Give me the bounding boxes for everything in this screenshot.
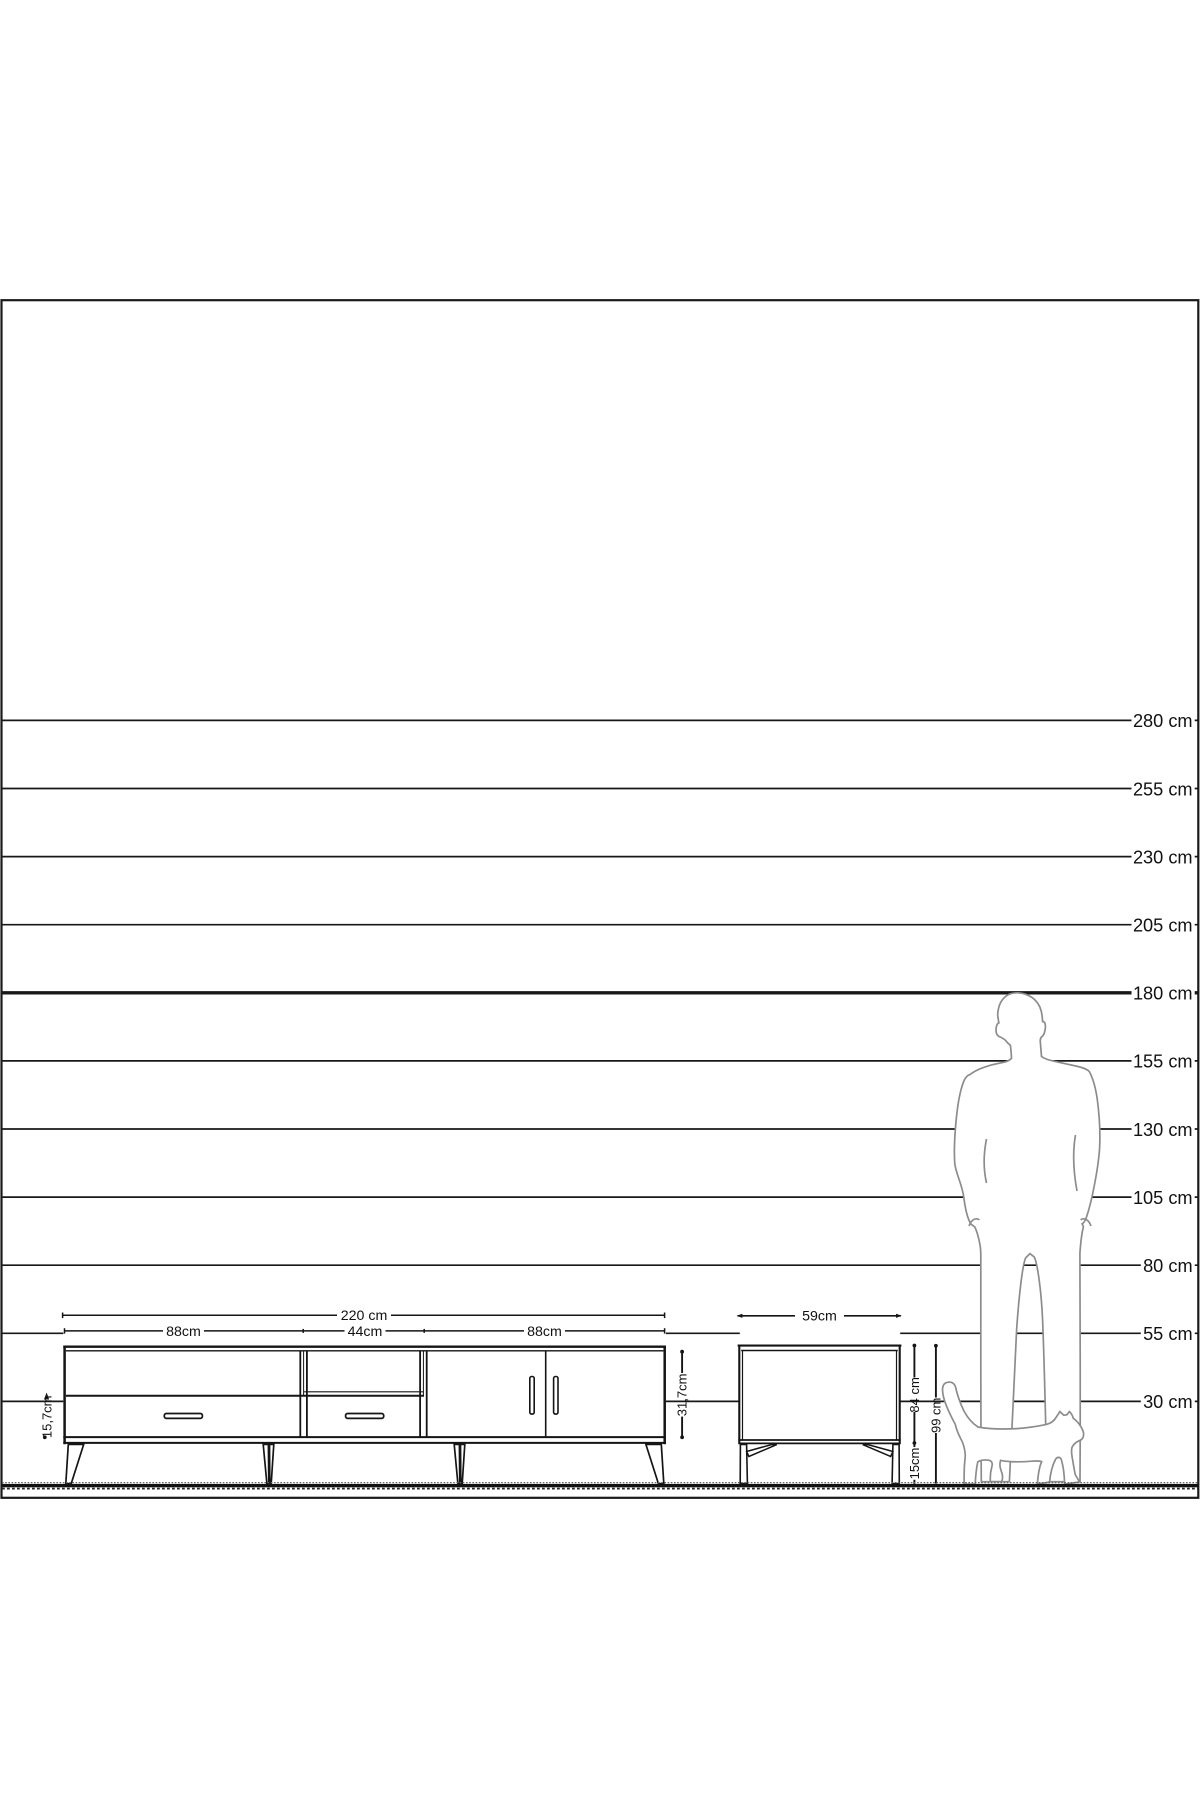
svg-text:280 cm: 280 cm: [1133, 711, 1193, 731]
svg-text:155 cm: 155 cm: [1133, 1052, 1193, 1072]
svg-text:130 cm: 130 cm: [1133, 1120, 1193, 1140]
svg-text:80 cm: 80 cm: [1143, 1256, 1193, 1276]
svg-text:88cm: 88cm: [527, 1324, 562, 1340]
svg-text:180 cm: 180 cm: [1133, 984, 1193, 1004]
svg-text:255 cm: 255 cm: [1133, 779, 1193, 799]
svg-text:31,7cm: 31,7cm: [674, 1374, 689, 1417]
svg-text:15,7cm: 15,7cm: [39, 1395, 54, 1438]
svg-text:230 cm: 230 cm: [1133, 847, 1193, 867]
svg-text:205 cm: 205 cm: [1133, 916, 1193, 936]
svg-text:99 cm: 99 cm: [928, 1398, 943, 1433]
svg-text:44cm: 44cm: [348, 1324, 383, 1340]
svg-text:55 cm: 55 cm: [1143, 1324, 1193, 1344]
svg-text:105 cm: 105 cm: [1133, 1188, 1193, 1208]
svg-text:88cm: 88cm: [166, 1324, 201, 1340]
svg-text:84 cm: 84 cm: [907, 1377, 922, 1412]
svg-text:220 cm: 220 cm: [341, 1308, 388, 1324]
svg-text:59cm: 59cm: [802, 1309, 837, 1325]
svg-text:15cm: 15cm: [907, 1448, 922, 1480]
svg-text:30 cm: 30 cm: [1143, 1392, 1193, 1412]
